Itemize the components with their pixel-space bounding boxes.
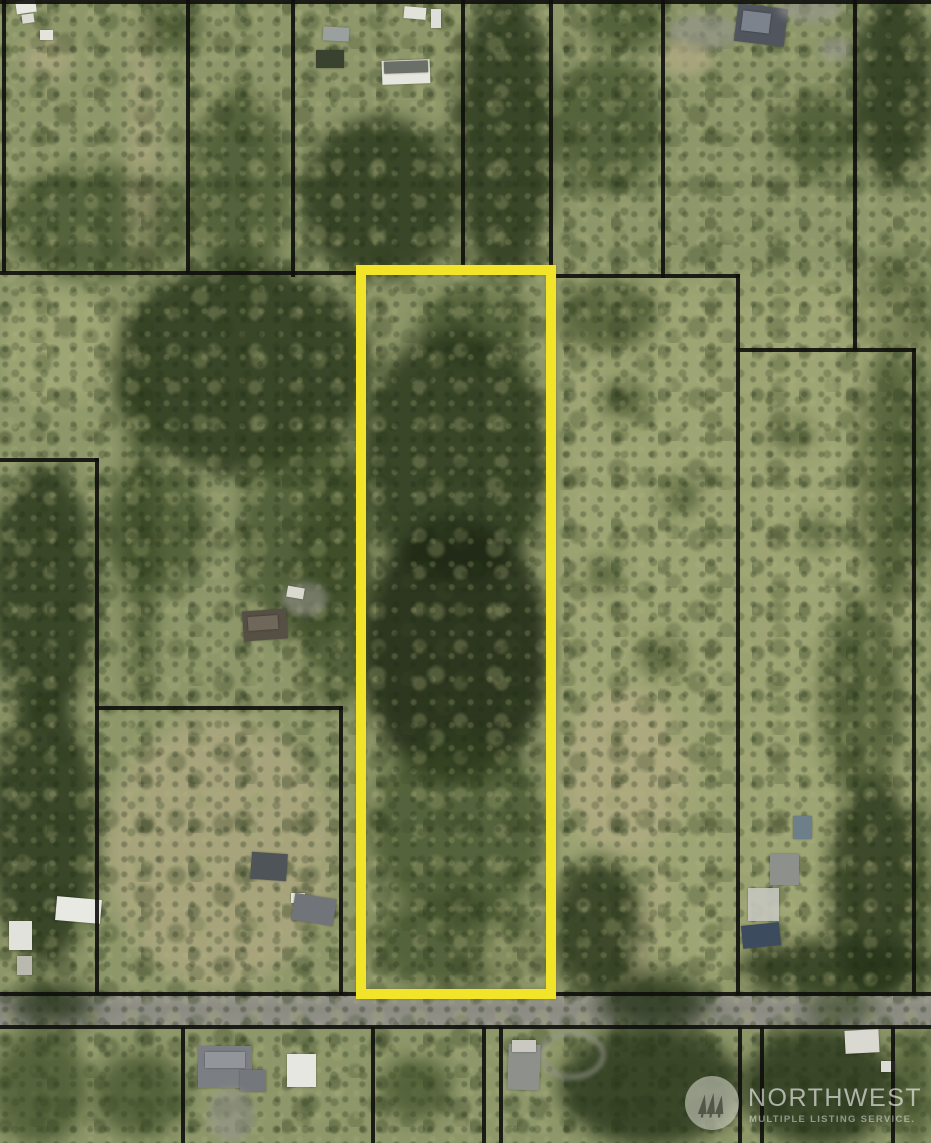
- building: [287, 1054, 316, 1087]
- building-roof: [741, 10, 771, 33]
- vegetation-patch: [190, 90, 290, 280]
- parcel-boundary-line: [736, 274, 740, 995]
- tree-shadow: [10, 982, 95, 1024]
- building: [741, 922, 781, 949]
- vegetation-patch: [600, 380, 650, 420]
- parcel-boundary-line: [95, 458, 99, 995]
- highlighted-parcel-outline: [356, 265, 556, 999]
- aerial-photo: NORTHWEST MULTIPLE LISTING SERVICE.: [0, 0, 931, 1143]
- building: [431, 9, 441, 28]
- vegetation-patch: [95, 1052, 187, 1137]
- vegetation-patch: [380, 1058, 452, 1120]
- vegetation-patch: [778, 92, 860, 180]
- three-pine-trees-icon: [695, 1086, 729, 1120]
- circular-driveway: [538, 1030, 606, 1080]
- vegetation-patch: [853, 0, 931, 185]
- building: [40, 30, 53, 40]
- dirt-patch: [22, 36, 74, 80]
- parcel-boundary-line: [339, 706, 343, 995]
- parcel-boundary-line: [499, 1027, 503, 1143]
- vegetation-patch: [585, 558, 623, 590]
- parcel-boundary-line: [0, 458, 99, 462]
- parcel-boundary-line: [0, 1025, 931, 1029]
- parcel-boundary-line: [549, 0, 553, 274]
- gravel-patch: [820, 38, 852, 60]
- parcel-boundary-line: [95, 706, 343, 710]
- building: [250, 852, 288, 881]
- building: [240, 1070, 266, 1092]
- parcel-boundary-line: [181, 1027, 185, 1143]
- dirt-field: [105, 715, 335, 987]
- vegetation-patch: [100, 468, 212, 590]
- parcel-boundary-line: [371, 1027, 375, 1143]
- dirt-patch: [565, 690, 687, 852]
- vegetation-patch: [552, 58, 664, 193]
- nwmls-logo-circle: [685, 1076, 739, 1130]
- parcel-boundary-line: [853, 0, 857, 350]
- vegetation-patch: [903, 355, 931, 580]
- parcel-boundary-line: [291, 0, 295, 277]
- parcel-boundary-line: [661, 0, 665, 278]
- parcel-boundary-line: [461, 0, 465, 270]
- vegetation-patch: [0, 288, 120, 410]
- vegetation-patch: [300, 118, 460, 280]
- building: [21, 13, 34, 24]
- parcel-boundary-line: [551, 274, 740, 278]
- building: [770, 854, 799, 885]
- watermark-tagline-text: MULTIPLE LISTING SERVICE.: [749, 1114, 915, 1125]
- dirt-trail: [130, 15, 156, 265]
- building: [323, 26, 350, 41]
- vegetation-patch: [0, 1030, 87, 1143]
- building-roof: [205, 1052, 245, 1068]
- road: [0, 996, 931, 1025]
- building-roof: [384, 60, 428, 74]
- vegetation-patch: [0, 465, 98, 720]
- vegetation-patch: [770, 418, 812, 450]
- vegetation-patch: [906, 795, 931, 1000]
- building-roof: [512, 1040, 536, 1052]
- vegetation-patch: [455, 0, 555, 282]
- dirt-patch: [658, 42, 712, 76]
- parcel-boundary-line: [186, 0, 190, 273]
- driveway: [208, 1088, 254, 1143]
- parcel-boundary-line: [2, 0, 6, 272]
- vegetation-patch: [800, 518, 836, 548]
- building: [9, 921, 32, 950]
- vegetation-patch: [820, 598, 902, 800]
- watermark-brand-text: NORTHWEST: [748, 1084, 922, 1113]
- parcel-boundary-line: [482, 1027, 486, 1143]
- building: [316, 50, 344, 68]
- building: [748, 888, 779, 921]
- vegetation-patch: [640, 638, 686, 676]
- vegetation-patch: [660, 478, 702, 514]
- nwmls-watermark: NORTHWEST MULTIPLE LISTING SERVICE.: [655, 1070, 927, 1142]
- tree-shadow: [598, 972, 710, 1030]
- vegetation-patch: [558, 280, 658, 352]
- parcel-boundary-line: [0, 0, 931, 4]
- building: [793, 816, 812, 839]
- vegetation-patch: [585, 0, 667, 52]
- building: [404, 6, 427, 20]
- vegetation-patch: [0, 165, 195, 280]
- building: [844, 1029, 879, 1054]
- building-roof: [248, 615, 279, 631]
- parcel-boundary-line: [736, 348, 916, 352]
- parcel-boundary-line: [912, 348, 916, 995]
- building: [17, 956, 32, 975]
- parcel-boundary-line: [0, 271, 364, 275]
